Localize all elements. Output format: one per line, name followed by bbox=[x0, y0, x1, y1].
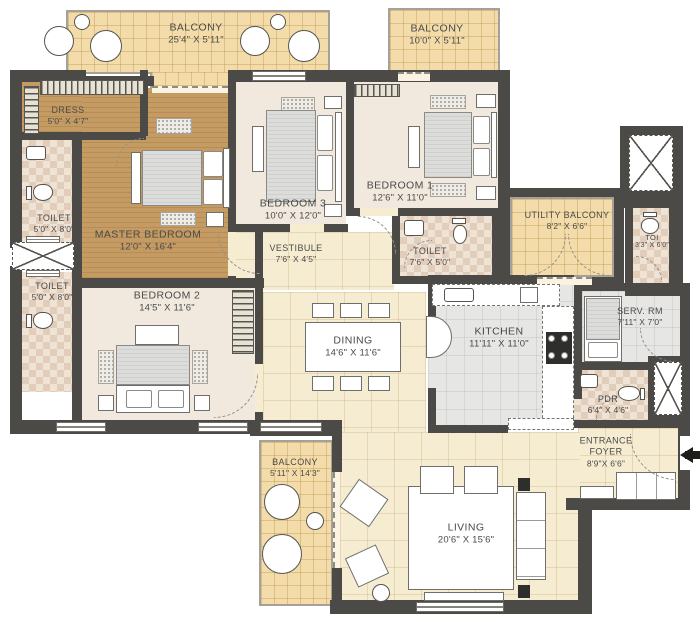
wall bbox=[582, 283, 690, 291]
planter bbox=[288, 30, 320, 62]
wc bbox=[641, 218, 659, 234]
label-toilet-mid: TOILET 7'6" X 5'0" bbox=[410, 246, 451, 268]
wall bbox=[346, 70, 354, 216]
wall bbox=[510, 188, 622, 197]
label-balcony-top: BALCONY 25'4" X 5'11" bbox=[168, 22, 224, 47]
window-bedroom2-a bbox=[56, 422, 106, 432]
rug bbox=[160, 212, 196, 226]
planter bbox=[240, 26, 270, 56]
rug bbox=[98, 350, 114, 384]
floor-lamp bbox=[518, 585, 530, 598]
label-master-bedroom: MASTER BEDROOM 12'0" X 16'4" bbox=[95, 229, 202, 254]
pillow bbox=[317, 155, 333, 191]
wardrobe-bedroom2 bbox=[232, 290, 254, 354]
bed-master bbox=[142, 150, 202, 206]
entrance-arrow-icon bbox=[685, 451, 700, 459]
bed-bedroom1 bbox=[424, 112, 472, 178]
wall bbox=[566, 420, 690, 428]
armchair bbox=[420, 466, 454, 494]
sliding-door-master bbox=[152, 86, 228, 93]
window-bedroom2-b bbox=[198, 422, 248, 432]
side-table bbox=[372, 584, 390, 602]
washbasin bbox=[404, 220, 424, 236]
dining-chair bbox=[340, 303, 362, 318]
door-opening bbox=[255, 364, 263, 412]
label-entrance-foyer: ENTRANCE FOYER 8'9"X 6'6" bbox=[571, 435, 641, 468]
kitchen-counter-right bbox=[542, 306, 574, 428]
label-utility-balcony: UTILITY BALCONY 8'2" X 6'6" bbox=[525, 210, 610, 232]
nightstand bbox=[476, 186, 496, 200]
nightstand bbox=[98, 395, 114, 411]
wall bbox=[332, 568, 342, 606]
nightstand bbox=[206, 212, 224, 227]
pillow bbox=[473, 116, 490, 144]
planter bbox=[90, 30, 122, 62]
planter bbox=[264, 484, 300, 520]
wc-tank bbox=[640, 388, 645, 400]
wc bbox=[33, 312, 53, 329]
dining-chair bbox=[312, 303, 334, 318]
wc bbox=[33, 184, 53, 201]
label-balcony-bottom: BALCONY 5'11" X 14'3" bbox=[270, 457, 320, 479]
wall bbox=[625, 200, 633, 296]
rug bbox=[156, 118, 192, 134]
rug bbox=[430, 95, 466, 109]
rug bbox=[192, 350, 208, 384]
rug bbox=[430, 183, 466, 197]
shaft-ledge-top bbox=[26, 236, 60, 243]
label-kitchen: KITCHEN 11'11" X 11'0" bbox=[469, 326, 529, 351]
window-dining-balcony bbox=[260, 422, 322, 432]
wall bbox=[392, 276, 500, 284]
pillow bbox=[158, 390, 184, 408]
shoe-cabinet bbox=[580, 486, 614, 499]
sliding-door-living-balcony bbox=[333, 472, 340, 568]
sliding-door-bedroom1 bbox=[398, 72, 430, 81]
shaft-ledge-bottom bbox=[26, 270, 60, 277]
headboard bbox=[223, 148, 230, 208]
floor-plan: BALCONY 25'4" X 5'11" BALCONY 10'0" X 5'… bbox=[0, 0, 700, 622]
wall bbox=[10, 266, 22, 434]
headboard bbox=[135, 325, 179, 345]
wc bbox=[453, 225, 467, 244]
label-bedroom1: BEDROOM 1 12'6" X 11'0" bbox=[367, 180, 434, 205]
wall bbox=[72, 266, 82, 422]
kitchen-appliance bbox=[520, 287, 538, 303]
floor-lamp bbox=[518, 478, 530, 491]
label-bedroom2: BEDROOM 2 14'5" X 11'6" bbox=[134, 290, 201, 315]
duct-shaft-left bbox=[12, 242, 74, 270]
pillow bbox=[473, 148, 490, 176]
nightstand bbox=[324, 96, 342, 109]
pillow bbox=[317, 115, 333, 151]
serv-blanket bbox=[586, 298, 620, 340]
wardrobe-dress-left bbox=[24, 86, 39, 134]
door-opening bbox=[360, 208, 398, 216]
armchair bbox=[464, 466, 498, 494]
label-toilet-right: TOI 3'3" X 6'0" bbox=[635, 233, 669, 251]
washbasin bbox=[580, 374, 598, 388]
label-dress: DRESS 5'0" X 4'7" bbox=[48, 105, 89, 127]
planter bbox=[270, 14, 286, 30]
pillow bbox=[588, 342, 618, 358]
wall bbox=[492, 208, 500, 284]
door-opening bbox=[290, 224, 324, 232]
wall bbox=[22, 132, 146, 140]
bed-bedroom3 bbox=[266, 110, 316, 202]
dining-chair bbox=[340, 376, 362, 391]
dining-chair bbox=[368, 376, 390, 391]
wall bbox=[346, 70, 390, 82]
stove-icon bbox=[546, 332, 572, 364]
bed-bench bbox=[252, 126, 264, 172]
sofa bbox=[516, 492, 546, 580]
window-bedroom3 bbox=[252, 71, 306, 81]
tv-console bbox=[424, 592, 504, 601]
wall bbox=[74, 278, 264, 288]
planter bbox=[262, 534, 302, 574]
duct-shaft-right bbox=[654, 362, 682, 415]
dining-chair bbox=[368, 303, 390, 318]
wall bbox=[332, 428, 342, 472]
wall bbox=[578, 498, 592, 610]
headboard bbox=[335, 112, 342, 202]
nightstand bbox=[476, 94, 496, 108]
door-arc-bedroom1 bbox=[358, 216, 396, 254]
label-pdr: PDR 6'4" X 4'6" bbox=[588, 394, 629, 416]
nightstand bbox=[194, 395, 210, 411]
washbasin bbox=[26, 146, 46, 160]
nightstand bbox=[324, 204, 342, 217]
wc-tank bbox=[643, 212, 657, 217]
pillow bbox=[126, 390, 152, 408]
label-balcony-top-right: BALCONY 10'0" X 5'11" bbox=[409, 23, 465, 48]
kitchen-sink bbox=[444, 288, 474, 302]
planter bbox=[44, 26, 74, 56]
label-living: LIVING 20'6" X 15'6" bbox=[438, 522, 494, 547]
bed-bench bbox=[408, 126, 420, 168]
elevator-shaft-icon bbox=[629, 135, 673, 191]
wc-tank bbox=[26, 314, 32, 328]
wc-tank bbox=[26, 186, 32, 200]
label-vestibule: VESTIBULE 7'6" X 4'5" bbox=[269, 243, 322, 265]
label-dining: DINING 14'6" X 11'6" bbox=[325, 335, 381, 360]
wall bbox=[428, 425, 508, 433]
label-toilet-lower-left: TOILET 5'0" X 8'0" bbox=[32, 281, 73, 303]
planter bbox=[306, 512, 324, 530]
bed-bedroom2 bbox=[116, 345, 190, 385]
label-toilet-upper-left: TOILET 5'0" X 8'0" bbox=[34, 213, 75, 235]
label-serv-rm: SERV. RM 7'11" X 7'0" bbox=[617, 306, 663, 328]
headboard bbox=[491, 112, 497, 178]
wardrobe-dress-top bbox=[40, 80, 144, 95]
window-living bbox=[416, 602, 504, 612]
wardrobe-bedroom1 bbox=[354, 84, 400, 97]
wall bbox=[625, 200, 669, 208]
wall bbox=[10, 70, 22, 248]
pillow bbox=[203, 151, 223, 177]
dining-chair bbox=[312, 376, 334, 391]
wc-tank bbox=[452, 218, 466, 224]
kitchen-counter-bottom bbox=[508, 418, 574, 430]
pillow bbox=[203, 179, 223, 205]
planter bbox=[74, 14, 90, 30]
label-bedroom3: BEDROOM 3 10'0" X 12'0" bbox=[260, 198, 327, 223]
